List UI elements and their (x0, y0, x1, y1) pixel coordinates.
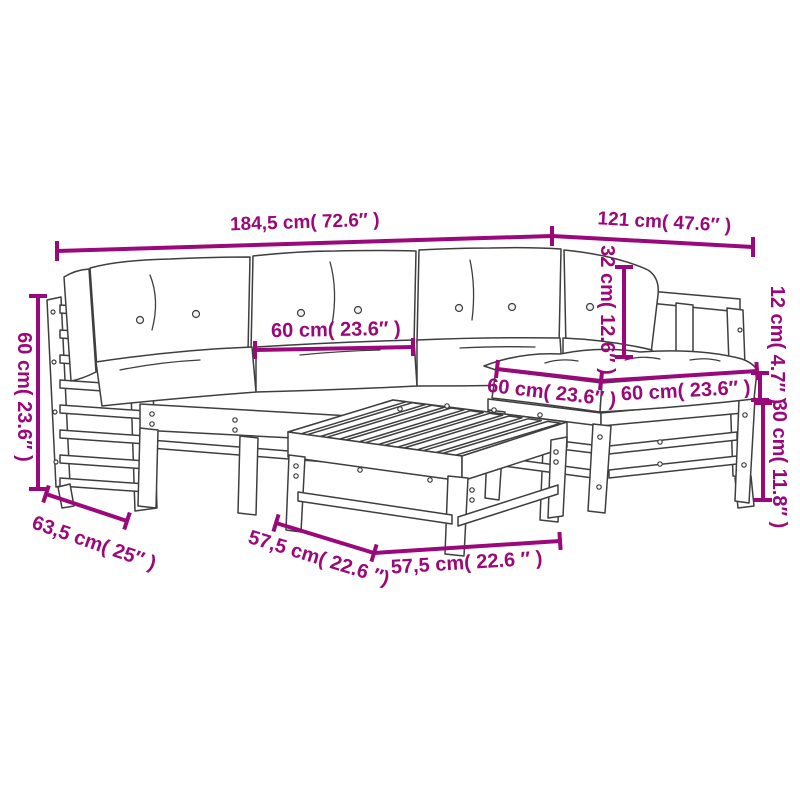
dimension-right-section-width: 121 cm( 47.6″ ) (552, 208, 753, 257)
diagram-canvas: 184,5 cm( 72.6″ ) 121 cm( 47.6″ ) 60 cm(… (0, 0, 800, 800)
dimension-table-width: 57,5 cm( 22.6 ″ ) (374, 532, 561, 579)
dimension-stool-frame-height: 30 cm( 11.8″ ) (754, 400, 790, 529)
dim-label-back-cushion-width: 60 cm( 23.6″ ) (271, 318, 401, 342)
dim-label-sofa-depth: 63,5 cm( 25″ ) (29, 512, 159, 575)
product-dimension-diagram: 184,5 cm( 72.6″ ) 121 cm( 47.6″ ) 60 cm(… (0, 0, 800, 800)
dim-label-stool-frame-height: 30 cm( 11.8″ ) (768, 400, 790, 529)
dim-label-armrest-height: 60 cm( 23.6″ ) (13, 332, 35, 462)
dim-label-sofa-total-width: 184,5 cm( 72.6″ ) (230, 210, 380, 236)
dim-label-seat-cushion-thickness: 12 cm( 4.7″ ) (766, 286, 788, 405)
coffee-table (286, 400, 567, 556)
dim-label-back-cushion-height: 32 cm( 12.6″ ) (596, 245, 618, 375)
dimension-seat-cushion-thickness: 12 cm( 4.7″ ) (751, 286, 788, 405)
dim-label-right-section-width: 121 cm( 47.6″ ) (597, 208, 732, 236)
dimension-table-depth: 57,5 cm( 22.6 ″) (246, 514, 392, 590)
dimension-armrest-height: 60 cm( 23.6″ ) (13, 296, 47, 489)
